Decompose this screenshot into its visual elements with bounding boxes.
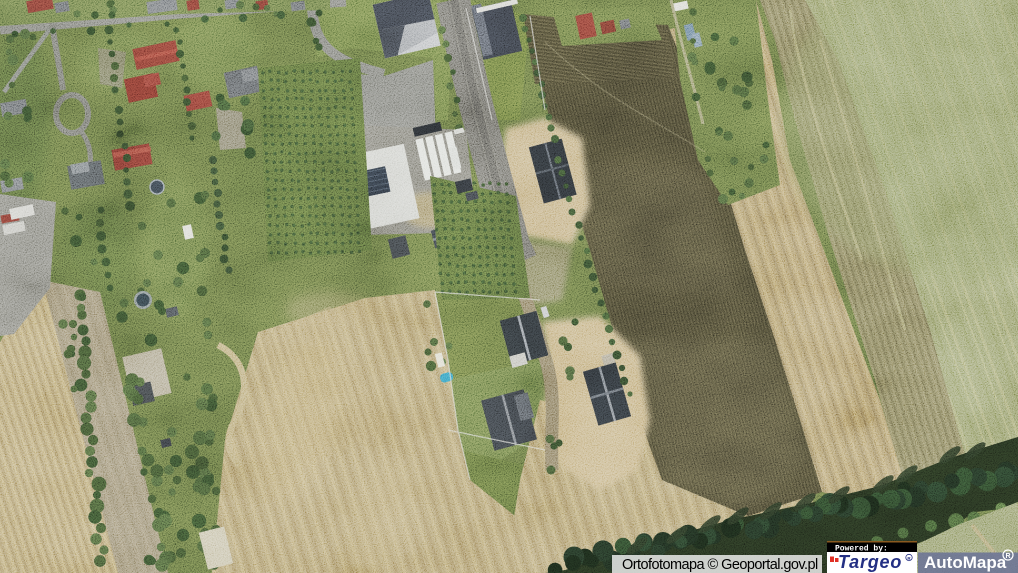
svg-text:Targeo: Targeo	[838, 552, 902, 572]
svg-text:Ortofotomapa © Geoportal.gov.p: Ortofotomapa © Geoportal.gov.pl	[622, 557, 818, 573]
svg-text:AutoMapa: AutoMapa	[924, 553, 1007, 572]
svg-text:R: R	[1005, 553, 1010, 560]
